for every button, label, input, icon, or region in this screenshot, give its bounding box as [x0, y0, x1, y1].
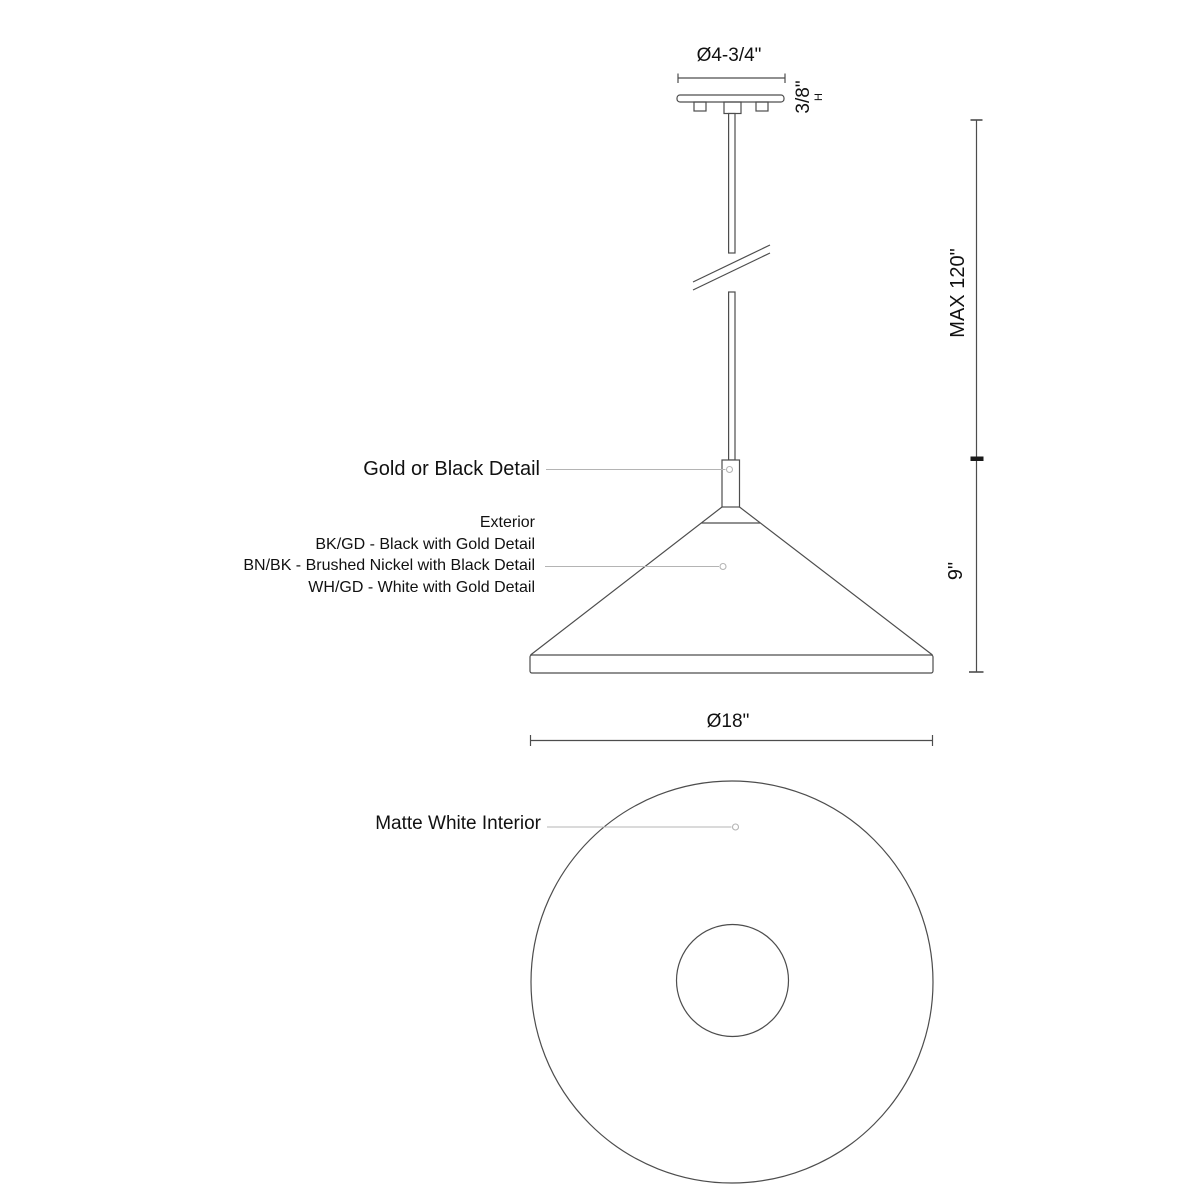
canopy-right-tab [756, 102, 768, 111]
shade-left-slope [531, 507, 723, 655]
dim-canopy-diameter [678, 74, 785, 84]
leader-dot [727, 467, 733, 473]
shade-height-label: 9" [943, 549, 969, 593]
shade-right-slope [740, 507, 933, 655]
dim-max-drop [971, 120, 984, 461]
canopy-plate [677, 95, 784, 102]
leader-dot [720, 564, 726, 570]
exterior-title: Exterior [178, 512, 535, 534]
finish-option: BN/BK - Brushed Nickel with Black Detail [178, 555, 535, 577]
bottom-view-inner-circle [677, 925, 789, 1037]
shade-front-view [530, 507, 933, 673]
finish-option: BK/GD - Black with Gold Detail [178, 534, 535, 556]
canopy-height-suffix: H [813, 93, 825, 101]
hang-rod-upper [729, 114, 735, 254]
shade-height-value: 9" [945, 562, 968, 580]
canopy-stem-block [724, 102, 741, 114]
canopy-height-label: 3/8" H [782, 70, 836, 124]
break-symbol-line-2 [693, 253, 770, 290]
interior-callout-label: Matte White Interior [300, 813, 541, 835]
leader-dot [733, 824, 739, 830]
canopy-left-tab [694, 102, 706, 111]
canopy-front-view [677, 95, 784, 114]
dim-shade-height [969, 461, 984, 672]
finish-option: WH/GD - White with Gold Detail [178, 577, 535, 599]
max-drop-label: MAX 120" [945, 233, 971, 353]
canopy-diameter-label: Ø4-3/4" [629, 45, 829, 67]
max-drop-value: MAX 120" [947, 248, 970, 337]
shade-bottom-rim [530, 655, 933, 673]
hang-rod [693, 114, 770, 461]
leader-detail-callout [546, 467, 733, 473]
exterior-finish-block: Exterior BK/GD - Black with Gold Detail … [178, 512, 535, 598]
shade-bottom-view [531, 781, 933, 1183]
leader-interior-callout [547, 824, 739, 830]
bottom-view-outer-circle [531, 781, 933, 1183]
hang-rod-lower [729, 292, 735, 460]
shade-diameter-label: Ø18" [628, 711, 828, 733]
leader-exterior-callout [545, 564, 726, 570]
dim-tick-middle [971, 457, 984, 462]
pendant-spec-drawing: Ø4-3/4" 3/8" H MAX 120" 9" Gold or Black… [0, 0, 1200, 1200]
detail-callout-label: Gold or Black Detail [300, 458, 540, 481]
line-art [0, 0, 1200, 1200]
dim-shade-diameter [531, 735, 933, 746]
canopy-height-value: 3/8" [794, 80, 813, 113]
